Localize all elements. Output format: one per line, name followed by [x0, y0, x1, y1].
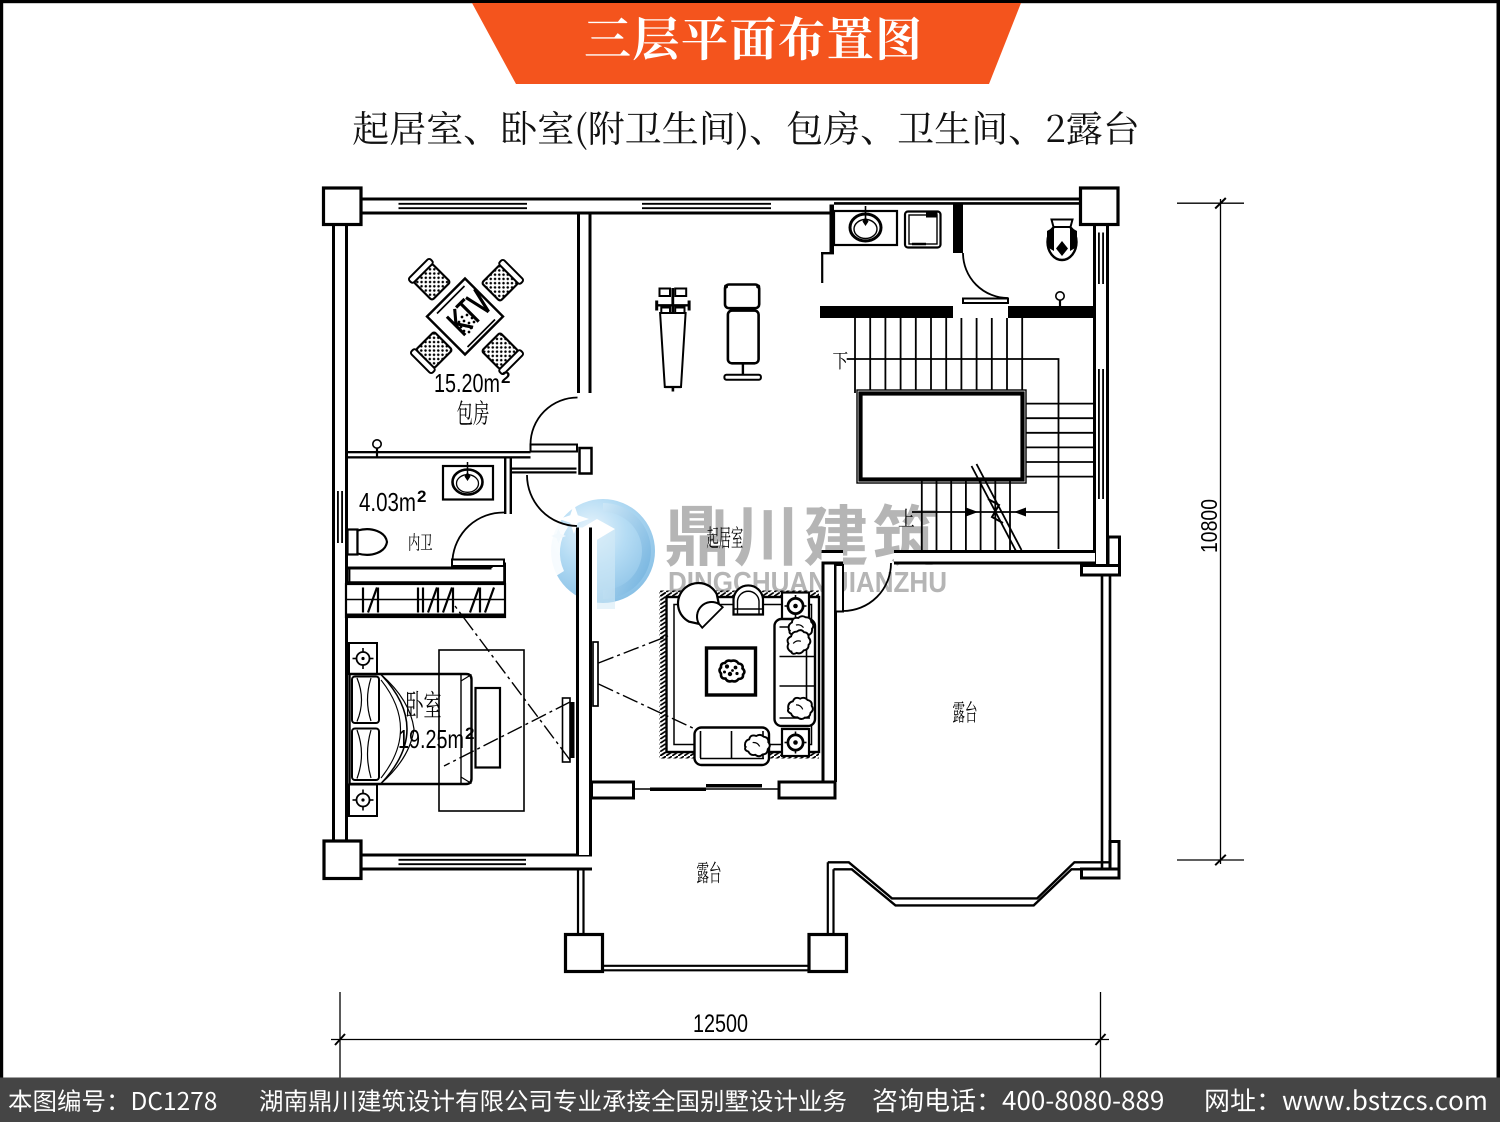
svg-text:2: 2: [465, 724, 474, 743]
svg-text:2: 2: [417, 487, 426, 506]
svg-text:2: 2: [501, 368, 510, 387]
svg-text:15.20m: 15.20m: [434, 368, 500, 398]
svg-text:12500: 12500: [693, 1010, 748, 1038]
svg-text:10800: 10800: [1196, 499, 1222, 553]
svg-text:19.25m: 19.25m: [398, 724, 464, 754]
svg-text:4.03m: 4.03m: [359, 487, 416, 517]
